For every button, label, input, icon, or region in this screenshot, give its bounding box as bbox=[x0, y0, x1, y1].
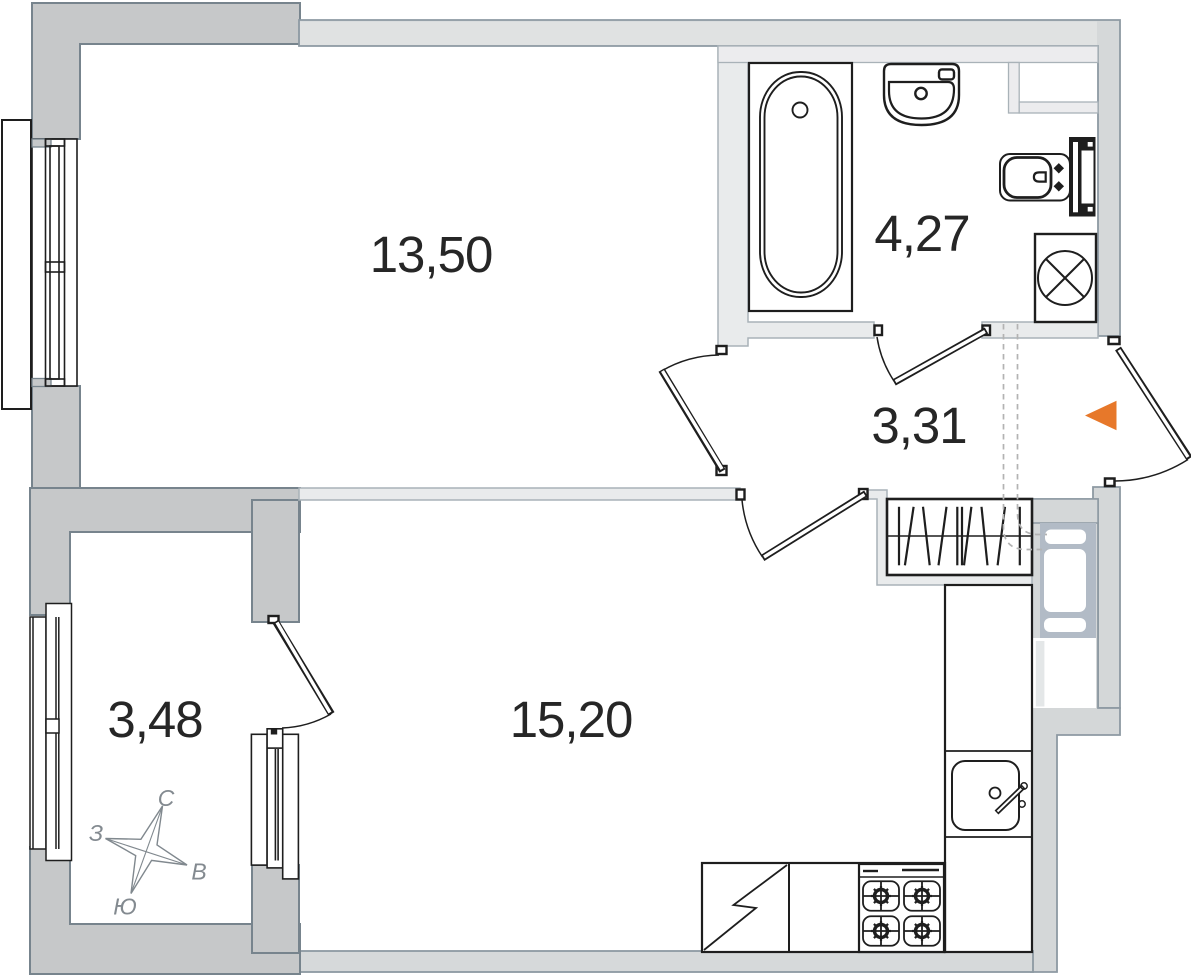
svg-text:15,20: 15,20 bbox=[510, 691, 633, 748]
svg-text:С: С bbox=[158, 785, 175, 811]
svg-text:З: З bbox=[89, 820, 103, 846]
svg-text:3,48: 3,48 bbox=[107, 691, 202, 748]
svg-text:3,31: 3,31 bbox=[871, 397, 966, 454]
svg-text:В: В bbox=[191, 859, 206, 885]
svg-text:Ю: Ю bbox=[113, 894, 137, 920]
svg-text:4,27: 4,27 bbox=[874, 205, 969, 262]
svg-text:13,50: 13,50 bbox=[370, 226, 493, 283]
